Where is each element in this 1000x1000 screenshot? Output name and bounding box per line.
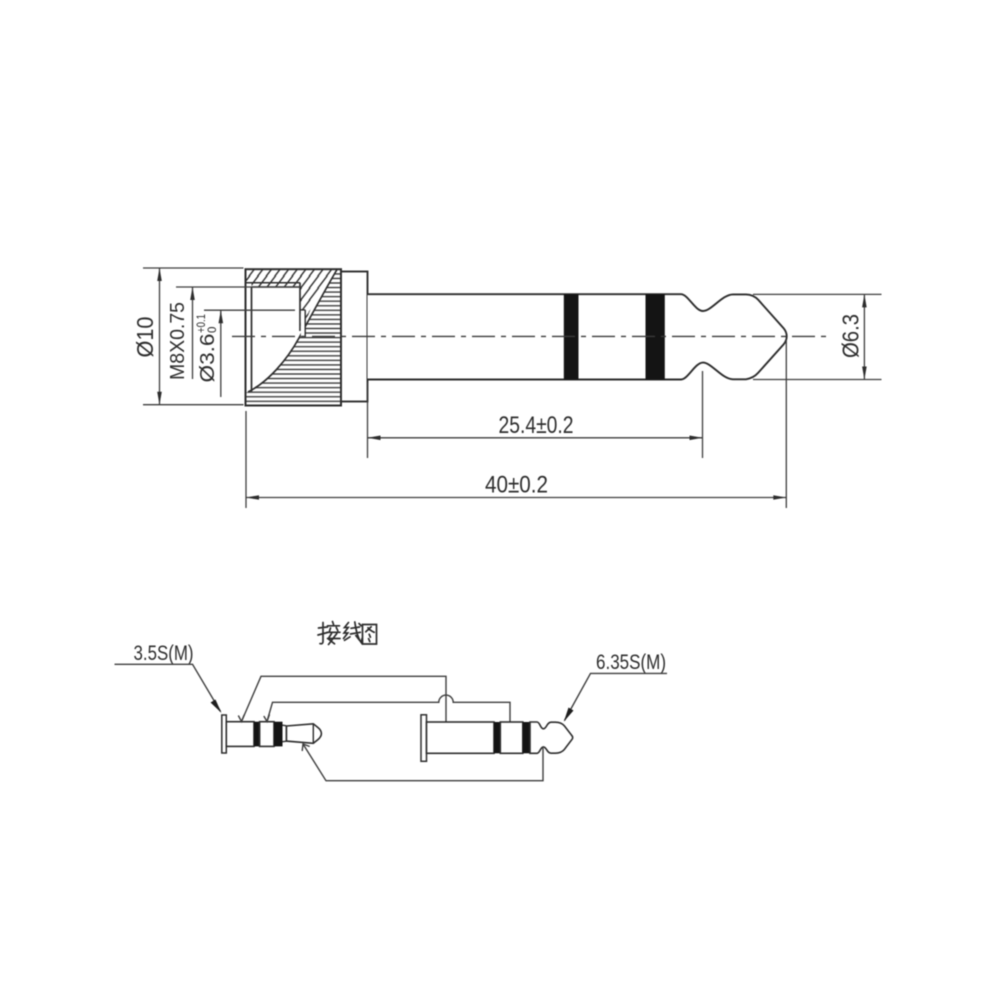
- svg-text:0: 0: [207, 327, 219, 333]
- svg-text:Ø3.6: Ø3.6: [196, 334, 219, 383]
- svg-text:6.35S(M): 6.35S(M): [596, 650, 666, 674]
- svg-text:Ø10: Ø10: [132, 317, 158, 358]
- svg-text:40±0.2: 40±0.2: [485, 472, 548, 499]
- svg-text:25.4±0.2: 25.4±0.2: [499, 412, 574, 439]
- svg-text:M8X0.75: M8X0.75: [166, 302, 189, 380]
- svg-text:Ø6.3: Ø6.3: [838, 314, 864, 358]
- svg-text:3.5S(M): 3.5S(M): [134, 642, 194, 665]
